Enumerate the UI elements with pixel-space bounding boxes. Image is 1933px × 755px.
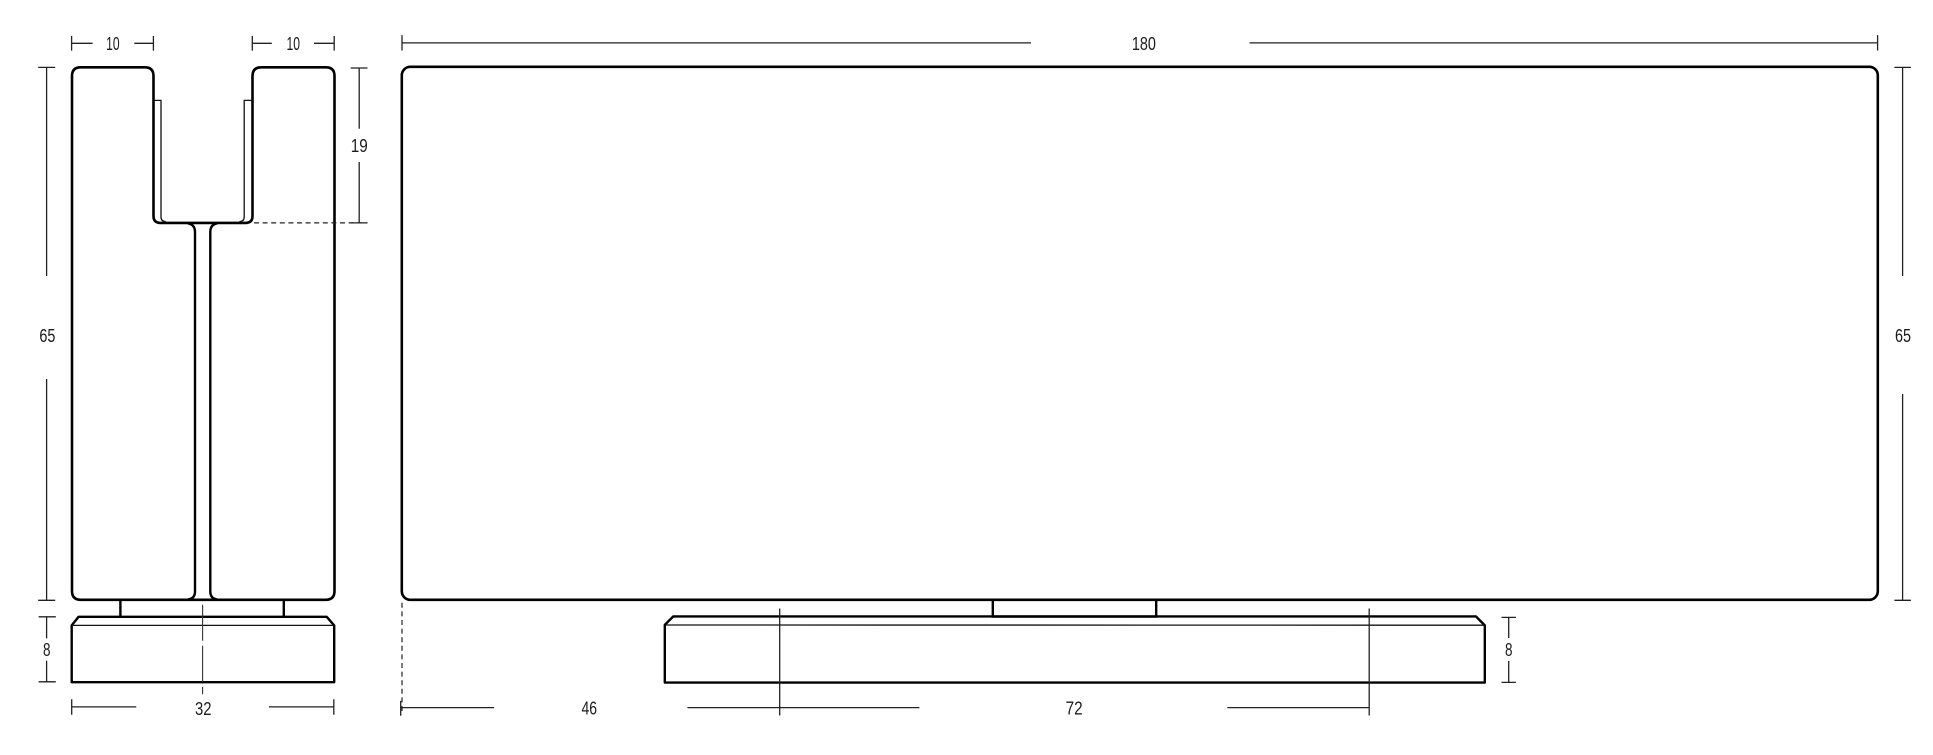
svg-text:19: 19	[351, 136, 368, 156]
svg-text:8: 8	[43, 640, 51, 660]
svg-text:65: 65	[1895, 326, 1911, 346]
svg-text:10: 10	[106, 34, 120, 54]
svg-text:72: 72	[1066, 698, 1083, 718]
svg-text:180: 180	[1132, 34, 1156, 54]
svg-text:32: 32	[195, 699, 212, 719]
svg-text:65: 65	[39, 326, 55, 346]
svg-text:10: 10	[287, 34, 301, 54]
svg-text:8: 8	[1505, 640, 1513, 660]
svg-text:46: 46	[582, 698, 598, 718]
